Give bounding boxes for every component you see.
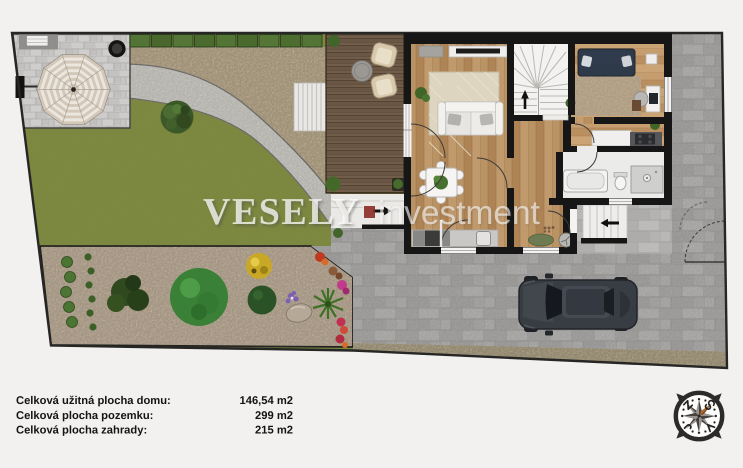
- svg-text:146,54 m2: 146,54 m2: [240, 395, 294, 407]
- svg-text:Celková plocha zahrady:: Celková plocha zahrady:: [16, 425, 147, 437]
- svg-text:investment: investment: [378, 195, 541, 232]
- svg-text:Celková užitná plocha domu:: Celková užitná plocha domu:: [16, 395, 171, 407]
- svg-text:215 m2: 215 m2: [255, 425, 293, 437]
- svg-text:VESELY: VESELY: [203, 191, 361, 233]
- svg-text:Celková plocha pozemku:: Celková plocha pozemku:: [16, 410, 153, 422]
- svg-text:299 m2: 299 m2: [255, 410, 293, 422]
